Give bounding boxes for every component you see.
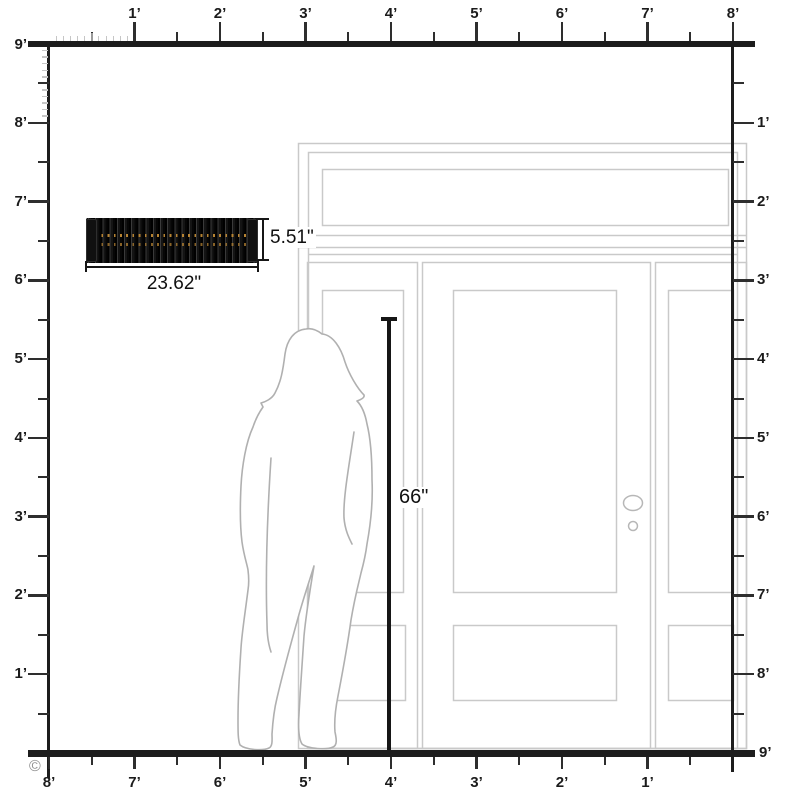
top-ruler-inch-tick bbox=[77, 36, 78, 41]
product-width-label: 23.62" bbox=[85, 273, 263, 294]
top-ruler-half-tick bbox=[433, 32, 435, 41]
door-lock-icon bbox=[629, 522, 638, 531]
left-ruler-half-tick bbox=[38, 476, 49, 478]
top-ruler-bar bbox=[28, 41, 755, 47]
right-ruler-label: 5’ bbox=[757, 429, 781, 447]
person-height-label: 66" bbox=[397, 487, 430, 508]
right-ruler-half-tick bbox=[733, 555, 744, 557]
top-ruler-major-tick bbox=[390, 22, 393, 41]
top-ruler-label: 2’ bbox=[206, 5, 234, 23]
bottom-ruler-major-tick bbox=[219, 757, 222, 769]
bottom-ruler-label: 7’ bbox=[121, 774, 149, 792]
left-ruler-inch-tick bbox=[42, 76, 48, 78]
bottom-ruler-major-tick bbox=[48, 757, 51, 769]
top-ruler-half-tick bbox=[689, 32, 691, 41]
left-ruler-line bbox=[47, 41, 50, 778]
product-image bbox=[86, 218, 258, 263]
top-ruler-label: 1’ bbox=[121, 5, 149, 23]
door-knob bbox=[624, 496, 643, 531]
left-ruler-label: 7’ bbox=[3, 193, 27, 211]
left-ruler-half-tick bbox=[38, 555, 49, 557]
right-ruler-label: 6’ bbox=[757, 508, 781, 526]
top-ruler-half-tick bbox=[518, 32, 520, 41]
left-ruler-half-tick bbox=[38, 634, 49, 636]
bottom-ruler-label: 8’ bbox=[35, 774, 63, 792]
top-ruler-label: 4’ bbox=[377, 5, 405, 23]
top-ruler-half-tick bbox=[347, 32, 349, 41]
bottom-ruler-half-tick bbox=[91, 757, 93, 765]
left-ruler-inch-tick bbox=[42, 109, 48, 111]
product-dot-row bbox=[97, 234, 247, 237]
left-ruler-major-tick bbox=[28, 122, 49, 125]
right-ruler-major-tick bbox=[733, 358, 754, 361]
bottom-ruler-half-tick bbox=[518, 757, 520, 765]
bottom-ruler-label: 1’ bbox=[634, 774, 662, 792]
top-ruler-major-tick bbox=[133, 22, 136, 41]
height-measure-line bbox=[387, 319, 391, 752]
bottom-ruler-label: 3’ bbox=[463, 774, 491, 792]
woman-outline bbox=[238, 329, 372, 750]
top-ruler-label: 5’ bbox=[463, 5, 491, 23]
bottom-ruler-label: 2’ bbox=[548, 774, 576, 792]
left-ruler-half-tick bbox=[38, 713, 49, 715]
product-end-cap-left bbox=[86, 219, 97, 262]
left-ruler-inch-tick bbox=[42, 102, 48, 104]
left-ruler-major-tick bbox=[28, 437, 49, 440]
left-ruler-major-tick bbox=[28, 200, 49, 203]
door-lower-panel bbox=[454, 626, 617, 701]
top-ruler-half-tick bbox=[176, 32, 178, 41]
right-ruler-line bbox=[731, 41, 734, 772]
size-comparison-diagram: 66" 5.51" 23.62" 1’2’3’4’5’6’7’8’9’8’7’6… bbox=[0, 0, 800, 800]
top-ruler-major-tick bbox=[561, 22, 564, 41]
right-ruler-label: 2’ bbox=[757, 193, 781, 211]
right-ruler-label: 1’ bbox=[757, 114, 781, 132]
left-ruler-inch-tick bbox=[42, 115, 48, 117]
right-ruler-label: 9’ bbox=[759, 744, 783, 762]
bottom-ruler-half-tick bbox=[347, 757, 349, 765]
left-ruler-inch-tick bbox=[42, 70, 48, 72]
bottom-ruler-major-tick bbox=[646, 757, 649, 769]
top-ruler-half-tick bbox=[262, 32, 264, 41]
left-ruler-major-tick bbox=[28, 515, 49, 518]
top-ruler-major-tick bbox=[304, 22, 307, 41]
top-ruler-inch-tick bbox=[84, 36, 85, 41]
top-ruler-label: 3’ bbox=[292, 5, 320, 23]
top-ruler-half-tick bbox=[604, 32, 606, 41]
left-ruler-major-tick bbox=[28, 279, 49, 282]
right-ruler-major-tick bbox=[733, 594, 754, 597]
bottom-ruler-half-tick bbox=[176, 757, 178, 765]
top-ruler-major-tick bbox=[219, 22, 222, 41]
bottom-ruler-bar bbox=[28, 750, 755, 757]
right-ruler-major-tick bbox=[733, 122, 754, 125]
top-ruler-label: 7’ bbox=[634, 5, 662, 23]
product-fins bbox=[86, 218, 258, 263]
top-ruler-major-tick bbox=[646, 22, 649, 41]
left-ruler-half-tick bbox=[38, 240, 49, 242]
bottom-ruler-label: 4’ bbox=[377, 774, 405, 792]
copyright-symbol: © bbox=[29, 758, 41, 776]
bottom-ruler-label: 5’ bbox=[292, 774, 320, 792]
left-ruler-label: 5’ bbox=[3, 350, 27, 368]
left-ruler-major-tick bbox=[28, 673, 49, 676]
product-dot-row bbox=[97, 243, 247, 246]
top-ruler-label: 6’ bbox=[548, 5, 576, 23]
top-ruler-inch-tick bbox=[63, 36, 64, 41]
right-sidelight-lower-panel bbox=[669, 626, 734, 701]
bottom-ruler-half-tick bbox=[689, 757, 691, 765]
woman-body-outline bbox=[238, 329, 372, 750]
right-ruler-half-tick bbox=[733, 161, 744, 163]
top-ruler-major-tick bbox=[732, 22, 735, 41]
bottom-ruler-label: 6’ bbox=[206, 774, 234, 792]
left-ruler-inch-tick bbox=[42, 56, 48, 58]
product-end-cap-right bbox=[247, 219, 258, 262]
top-ruler-inch-tick bbox=[120, 36, 121, 41]
left-ruler-inch-tick bbox=[42, 96, 48, 98]
left-ruler-inch-tick bbox=[42, 50, 48, 52]
right-ruler-label: 8’ bbox=[757, 665, 781, 683]
left-ruler-major-tick bbox=[28, 358, 49, 361]
person-silhouette bbox=[230, 326, 390, 756]
bottom-ruler-half-tick bbox=[604, 757, 606, 765]
left-ruler-label: 8’ bbox=[3, 114, 27, 132]
top-ruler-major-tick bbox=[475, 22, 478, 41]
left-ruler-half-tick bbox=[38, 161, 49, 163]
right-ruler-major-tick bbox=[733, 673, 754, 676]
left-ruler-major-tick bbox=[28, 594, 49, 597]
top-ruler-inch-tick bbox=[106, 36, 107, 41]
left-ruler-label: 9’ bbox=[3, 36, 27, 54]
right-ruler-half-tick bbox=[733, 398, 744, 400]
right-ruler-label: 4’ bbox=[757, 350, 781, 368]
bottom-ruler-major-tick bbox=[390, 757, 393, 769]
right-ruler-label: 3’ bbox=[757, 271, 781, 289]
right-ruler-half-tick bbox=[733, 713, 744, 715]
right-ruler-major-tick bbox=[733, 200, 754, 203]
product-width-cap-right bbox=[257, 261, 259, 272]
left-ruler-half-tick bbox=[38, 398, 49, 400]
right-sidelight-upper-panel bbox=[669, 291, 734, 593]
left-ruler-half-tick bbox=[38, 319, 49, 321]
door-illustration bbox=[0, 0, 800, 800]
left-ruler-label: 3’ bbox=[3, 508, 27, 526]
top-ruler-inch-tick bbox=[70, 36, 71, 41]
right-ruler-half-tick bbox=[733, 240, 744, 242]
product-width-line bbox=[85, 266, 259, 268]
top-ruler-label: 8’ bbox=[719, 5, 747, 23]
top-ruler-inch-tick bbox=[98, 36, 99, 41]
door-upper-panel bbox=[454, 291, 617, 593]
top-ruler-inch-tick bbox=[113, 36, 114, 41]
left-ruler-label: 4’ bbox=[3, 429, 27, 447]
door-knob-icon bbox=[624, 496, 643, 511]
bottom-ruler-half-tick bbox=[433, 757, 435, 765]
right-ruler-major-tick bbox=[733, 515, 754, 518]
left-ruler-label: 2’ bbox=[3, 586, 27, 604]
top-ruler-inch-tick bbox=[56, 36, 57, 41]
left-ruler-inch-tick bbox=[42, 63, 48, 65]
bottom-ruler-major-tick bbox=[304, 757, 307, 769]
bottom-ruler-half-tick bbox=[262, 757, 264, 765]
right-ruler-label: 7’ bbox=[757, 586, 781, 604]
left-ruler-label: 1’ bbox=[3, 665, 27, 683]
product-height-label: 5.51" bbox=[268, 227, 316, 248]
right-ruler-half-tick bbox=[733, 82, 744, 84]
right-ruler-major-tick bbox=[733, 437, 754, 440]
top-ruler-inch-tick bbox=[127, 36, 128, 41]
bottom-ruler-major-tick bbox=[133, 757, 136, 769]
product-height-line bbox=[262, 219, 264, 261]
top-ruler-inch-tick bbox=[91, 33, 93, 41]
left-ruler-inch-tick bbox=[42, 89, 48, 91]
right-ruler-major-tick bbox=[733, 279, 754, 282]
right-ruler-half-tick bbox=[733, 319, 744, 321]
right-ruler-half-tick bbox=[733, 476, 744, 478]
bottom-ruler-major-tick bbox=[475, 757, 478, 769]
left-ruler-label: 6’ bbox=[3, 271, 27, 289]
transom-window bbox=[323, 170, 729, 226]
right-ruler-half-tick bbox=[733, 634, 744, 636]
bottom-ruler-major-tick bbox=[561, 757, 564, 769]
left-ruler-half-tick bbox=[38, 82, 49, 84]
